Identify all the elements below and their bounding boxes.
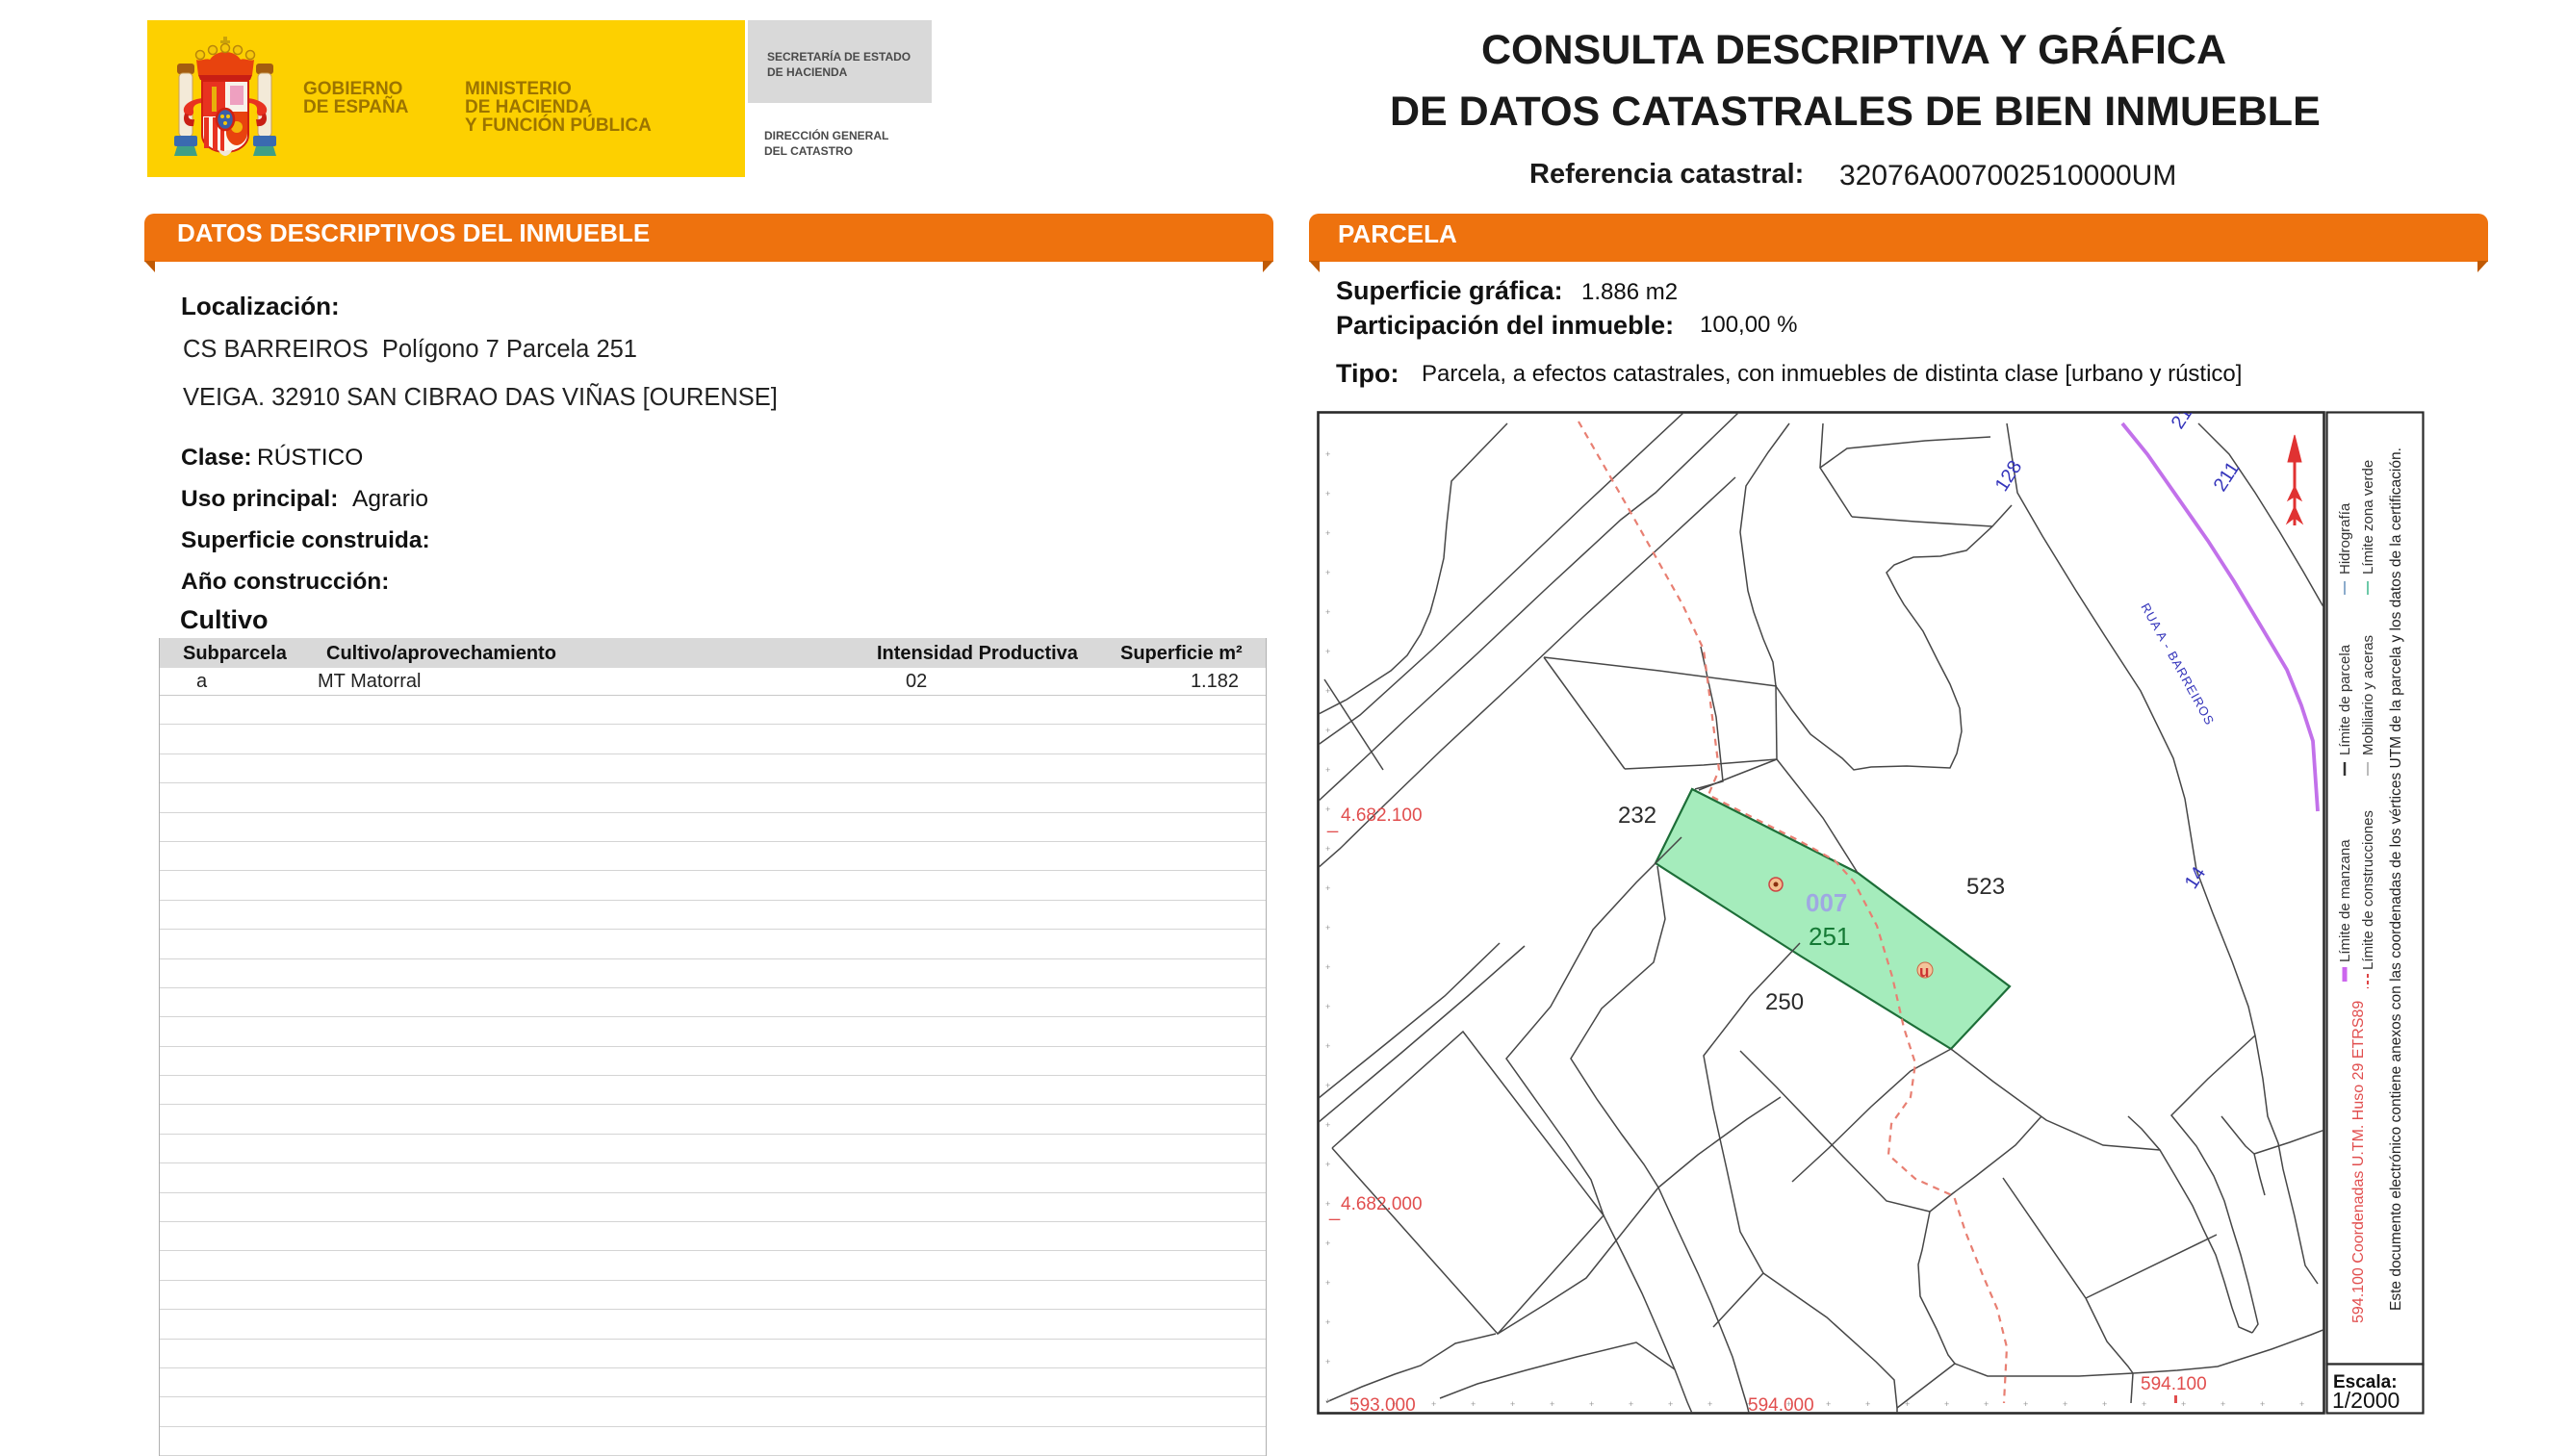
svg-text:+: + — [2063, 1399, 2067, 1409]
svg-text:594.100 Coordenadas U.TM. Huso: 594.100 Coordenadas U.TM. Huso 29 ETRS89 — [2350, 1001, 2367, 1323]
svg-text:+: + — [1325, 1357, 1330, 1367]
svg-text:+: + — [1325, 1317, 1330, 1327]
svg-text:+: + — [1325, 568, 1330, 577]
svg-text:232: 232 — [1618, 803, 1656, 829]
svg-text:+: + — [1984, 1399, 1989, 1409]
svg-text:251: 251 — [1809, 922, 1850, 951]
svg-text:+: + — [1325, 489, 1330, 498]
svg-text:+: + — [1325, 1160, 1330, 1169]
svg-text:Límite de manzana: Límite de manzana — [2337, 839, 2353, 962]
svg-text:+: + — [1865, 1399, 1870, 1409]
svg-text:+: + — [1325, 1002, 1330, 1011]
svg-text:Límite zona verde: Límite zona verde — [2360, 460, 2376, 575]
svg-text:594.000: 594.000 — [1748, 1395, 1814, 1416]
svg-text:+: + — [1325, 1081, 1330, 1090]
svg-text:523: 523 — [1966, 874, 2005, 900]
svg-text:+: + — [1325, 883, 1330, 893]
svg-text:4.682.000: 4.682.000 — [1341, 1194, 1423, 1214]
svg-text:4.682.100: 4.682.100 — [1341, 805, 1423, 826]
svg-text:+: + — [1325, 1041, 1330, 1051]
svg-text:+: + — [2181, 1399, 2186, 1409]
svg-text:+: + — [2142, 1399, 2146, 1409]
svg-text:+: + — [1325, 647, 1330, 656]
svg-text:_: _ — [1326, 812, 1339, 833]
svg-text:+: + — [2220, 1399, 2225, 1409]
svg-text:+: + — [2299, 1399, 2304, 1409]
svg-text:+: + — [1325, 449, 1330, 459]
svg-text:+: + — [1325, 686, 1330, 696]
svg-text:+: + — [1325, 844, 1330, 854]
svg-text:_: _ — [1328, 1200, 1341, 1221]
svg-text:u: u — [1919, 962, 1929, 981]
svg-text:+: + — [1325, 1120, 1330, 1130]
svg-text:+: + — [1905, 1399, 1910, 1409]
svg-text:+: + — [1944, 1399, 1949, 1409]
svg-text:+: + — [1510, 1399, 1515, 1409]
svg-text:+: + — [1550, 1399, 1554, 1409]
svg-text:Límite de construcciones: Límite de construcciones — [2360, 810, 2376, 970]
svg-text:+: + — [1668, 1399, 1673, 1409]
svg-text:Este documento electrónico con: Este documento electrónico contiene anex… — [2388, 447, 2404, 1311]
svg-text:+: + — [1325, 765, 1330, 775]
svg-text:594.100: 594.100 — [2141, 1374, 2207, 1394]
svg-text:+: + — [2023, 1399, 2028, 1409]
svg-text:+: + — [1325, 1239, 1330, 1248]
svg-text:+: + — [1471, 1399, 1476, 1409]
svg-text:+: + — [1431, 1399, 1436, 1409]
svg-text:+: + — [1325, 726, 1330, 735]
svg-text:+: + — [1325, 962, 1330, 972]
svg-text:593.000: 593.000 — [1349, 1395, 1416, 1416]
svg-text:+: + — [1629, 1399, 1633, 1409]
svg-text:Mobiliario y aceras: Mobiliario y aceras — [2360, 635, 2376, 755]
svg-text:+: + — [1826, 1399, 1831, 1409]
svg-text:1/2000: 1/2000 — [2332, 1388, 2400, 1413]
svg-text:+: + — [1325, 528, 1330, 538]
svg-text:+: + — [1325, 923, 1330, 932]
svg-text:+: + — [2260, 1399, 2265, 1409]
svg-text:+: + — [1325, 1278, 1330, 1288]
svg-text:Hidrografía: Hidrografía — [2337, 502, 2353, 575]
svg-text:+: + — [1325, 1396, 1330, 1406]
svg-text:+: + — [1589, 1399, 1594, 1409]
svg-text:250: 250 — [1765, 989, 1804, 1015]
svg-text:+: + — [1707, 1399, 1712, 1409]
svg-text:Límite de parcela: Límite de parcela — [2337, 644, 2353, 755]
svg-text:+: + — [1325, 607, 1330, 617]
svg-text:+: + — [2102, 1399, 2107, 1409]
svg-text:007: 007 — [1806, 888, 1847, 917]
